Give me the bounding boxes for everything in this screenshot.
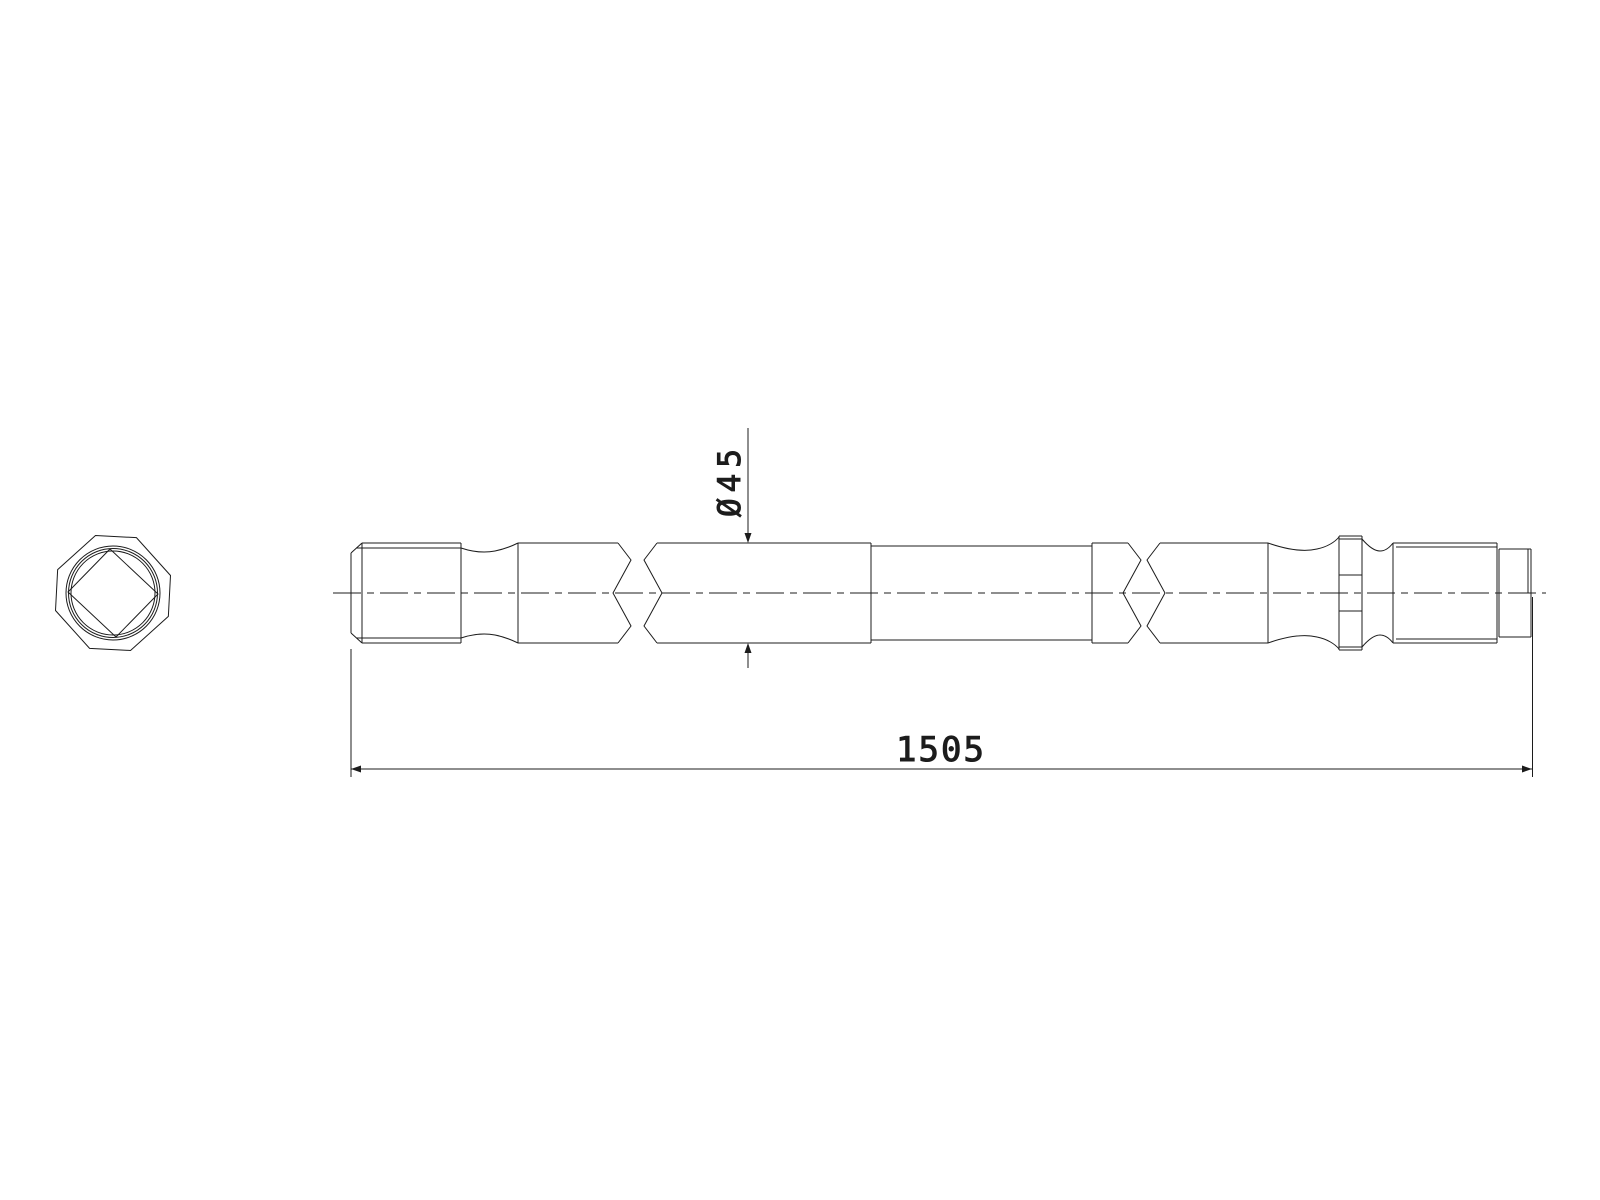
- drawing-background: [0, 0, 1600, 1200]
- length-dimension-label: 1505: [896, 730, 986, 770]
- cad-drawing-canvas: Ø45 1505: [0, 0, 1600, 1200]
- diameter-dimension-label: Ø45: [712, 443, 748, 517]
